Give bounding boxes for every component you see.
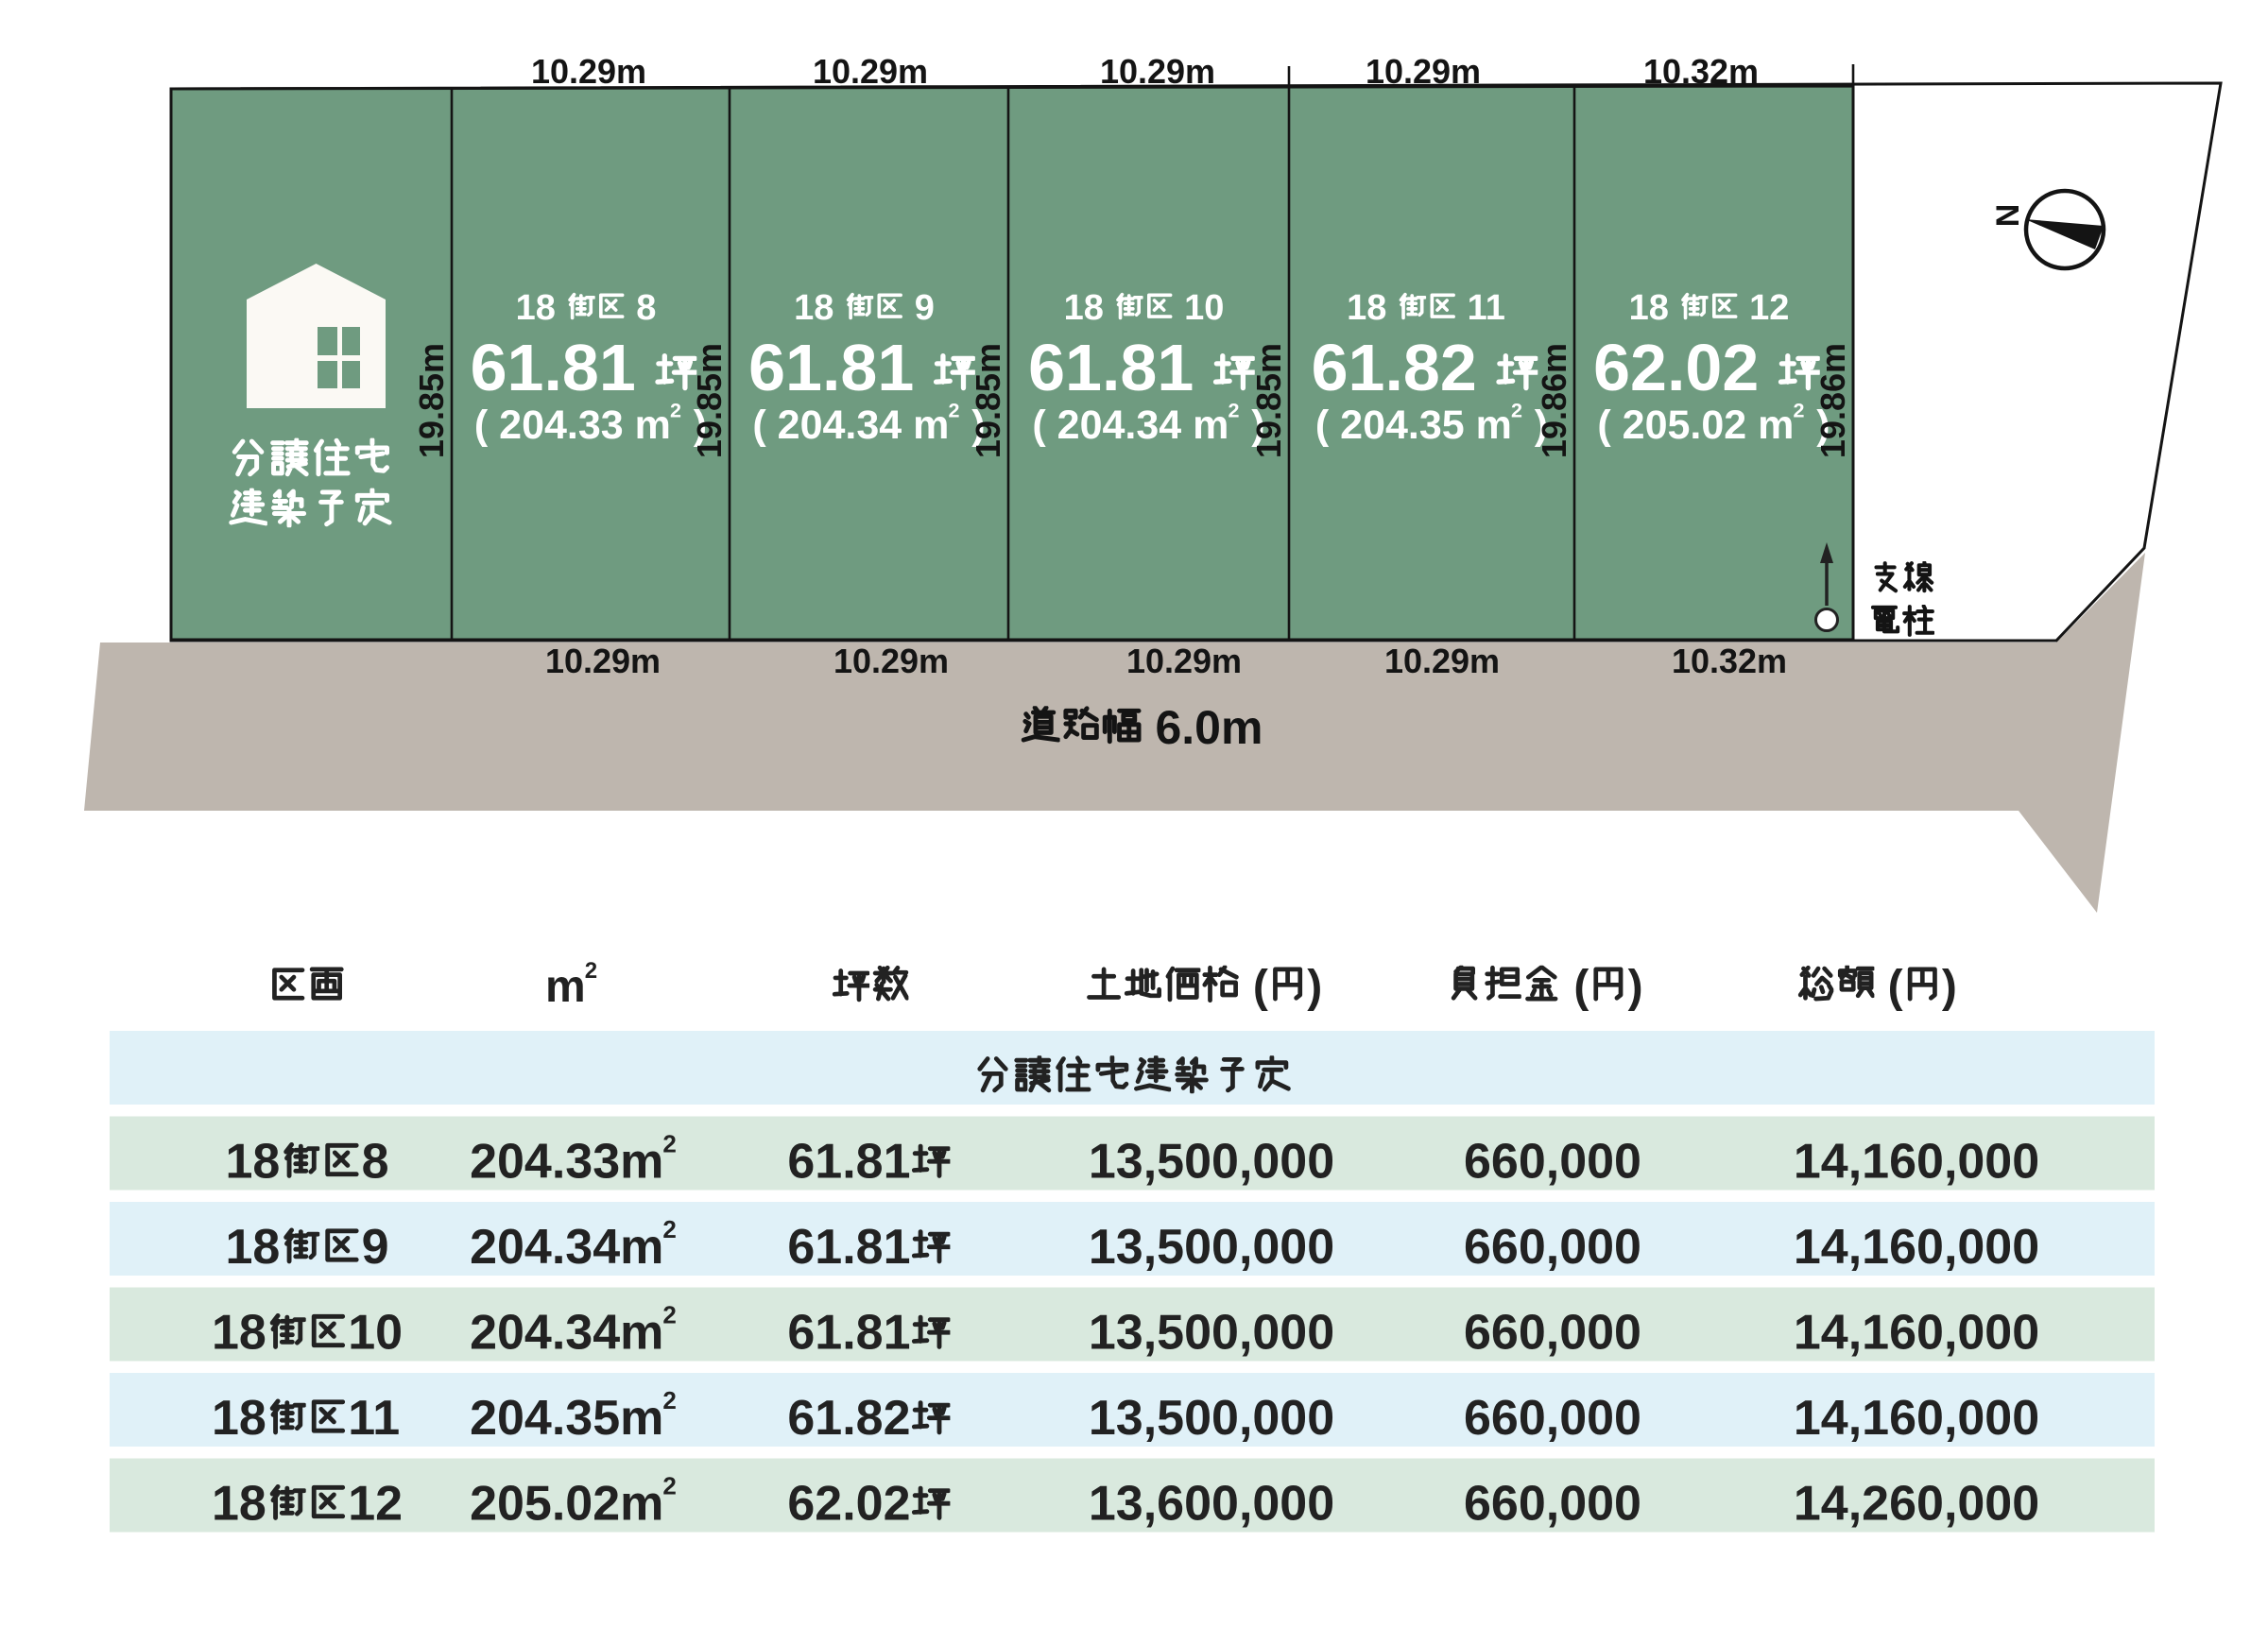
- svg-text:205.02m: 205.02m: [470, 1477, 663, 1532]
- svg-text:( 204.33 m: ( 204.33 m: [474, 403, 671, 448]
- svg-text:204.34m: 204.34m: [470, 1220, 663, 1275]
- svg-text:660,000: 660,000: [1464, 1220, 1641, 1275]
- svg-text:18: 18: [1064, 288, 1114, 328]
- svg-text:10: 10: [348, 1306, 403, 1361]
- svg-text:13,500,000: 13,500,000: [1089, 1306, 1334, 1361]
- svg-text:19.85m: 19.85m: [1249, 343, 1288, 458]
- svg-text:6.0m: 6.0m: [1143, 701, 1263, 754]
- svg-text:61.81: 61.81: [787, 1135, 910, 1190]
- svg-text:62.02: 62.02: [1593, 331, 1778, 404]
- svg-text:61.81: 61.81: [1028, 331, 1212, 404]
- svg-text:2: 2: [662, 1301, 676, 1329]
- svg-text:14,160,000: 14,160,000: [1794, 1306, 2039, 1361]
- svg-text:18: 18: [226, 1135, 281, 1190]
- svg-text:2: 2: [670, 400, 681, 422]
- svg-text:61.81: 61.81: [787, 1220, 910, 1275]
- svg-text:10: 10: [1175, 288, 1225, 328]
- svg-text:18: 18: [212, 1391, 266, 1446]
- svg-text:18: 18: [1347, 288, 1397, 328]
- svg-text:14,260,000: 14,260,000: [1794, 1477, 2039, 1532]
- svg-text:18: 18: [226, 1220, 281, 1275]
- svg-text:10.29m: 10.29m: [1366, 52, 1481, 91]
- svg-text:2: 2: [662, 1472, 676, 1500]
- svg-text:(: (: [1241, 962, 1268, 1012]
- svg-text:18: 18: [212, 1477, 266, 1532]
- svg-text:18: 18: [516, 288, 566, 328]
- svg-text:2: 2: [1794, 400, 1805, 422]
- svg-text:2: 2: [1511, 400, 1522, 422]
- svg-text:61.82: 61.82: [787, 1391, 910, 1446]
- svg-text:14,160,000: 14,160,000: [1794, 1135, 2039, 1190]
- svg-text:18: 18: [212, 1306, 266, 1361]
- svg-text:( 204.35 m: ( 204.35 m: [1315, 403, 1512, 448]
- svg-text:10.29m: 10.29m: [1100, 52, 1215, 91]
- svg-text:18: 18: [1629, 288, 1679, 328]
- svg-text:2: 2: [662, 1130, 676, 1158]
- svg-text:61.82: 61.82: [1312, 331, 1496, 404]
- svg-text:19.86m: 19.86m: [1535, 343, 1573, 458]
- svg-text:10.29m: 10.29m: [1126, 642, 1242, 680]
- svg-text:N: N: [1990, 204, 2026, 228]
- svg-text:13,600,000: 13,600,000: [1089, 1477, 1334, 1532]
- svg-text:(: (: [1875, 962, 1902, 1012]
- svg-text:( 204.34 m: ( 204.34 m: [1032, 403, 1228, 448]
- svg-text:10.29m: 10.29m: [545, 642, 661, 680]
- svg-text:9: 9: [362, 1220, 389, 1275]
- svg-text:2: 2: [662, 1215, 676, 1243]
- svg-text:14,160,000: 14,160,000: [1794, 1391, 2039, 1446]
- svg-text:8: 8: [362, 1135, 389, 1190]
- svg-text:62.02: 62.02: [787, 1477, 910, 1532]
- svg-text:10.29m: 10.29m: [1384, 642, 1500, 680]
- svg-text:204.34m: 204.34m: [470, 1306, 663, 1361]
- svg-text:( 204.34 m: ( 204.34 m: [752, 403, 949, 448]
- svg-text:660,000: 660,000: [1464, 1391, 1641, 1446]
- svg-text:2: 2: [949, 400, 960, 422]
- svg-text:12: 12: [1740, 288, 1790, 328]
- svg-text:(: (: [1561, 962, 1589, 1012]
- svg-text:): ): [1942, 962, 1969, 1012]
- svg-text:10.32m: 10.32m: [1672, 642, 1787, 680]
- svg-text:10.32m: 10.32m: [1643, 52, 1759, 91]
- svg-text:13,500,000: 13,500,000: [1089, 1391, 1334, 1446]
- svg-text:660,000: 660,000: [1464, 1477, 1641, 1532]
- svg-text:9: 9: [904, 288, 935, 328]
- svg-text:19.85m: 19.85m: [969, 343, 1007, 458]
- svg-text:): ): [1307, 962, 1334, 1012]
- svg-text:m: m: [545, 962, 586, 1012]
- svg-text:18: 18: [794, 288, 844, 328]
- svg-text:8: 8: [627, 288, 657, 328]
- svg-text:204.33m: 204.33m: [470, 1135, 663, 1190]
- svg-text:10.29m: 10.29m: [531, 52, 646, 91]
- svg-text:( 205.02 m: ( 205.02 m: [1597, 403, 1794, 448]
- svg-text:2: 2: [585, 958, 597, 984]
- svg-text:660,000: 660,000: [1464, 1306, 1641, 1361]
- svg-text:12: 12: [348, 1477, 403, 1532]
- svg-text:10.29m: 10.29m: [813, 52, 928, 91]
- svg-text:13,500,000: 13,500,000: [1089, 1135, 1334, 1190]
- svg-text:61.81: 61.81: [748, 331, 933, 404]
- svg-text:11: 11: [1457, 288, 1505, 328]
- svg-text:14,160,000: 14,160,000: [1794, 1220, 2039, 1275]
- svg-text:2: 2: [662, 1386, 676, 1414]
- svg-text:19.85m: 19.85m: [690, 343, 729, 458]
- svg-text:204.35m: 204.35m: [470, 1391, 663, 1446]
- svg-text:13,500,000: 13,500,000: [1089, 1220, 1334, 1275]
- svg-text:11: 11: [348, 1391, 400, 1446]
- svg-text:19.86m: 19.86m: [1813, 343, 1852, 458]
- svg-text:660,000: 660,000: [1464, 1135, 1641, 1190]
- svg-text:61.81: 61.81: [471, 331, 655, 404]
- svg-text:19.85m: 19.85m: [412, 343, 451, 458]
- svg-text:2: 2: [1228, 400, 1240, 422]
- svg-text:): ): [1628, 962, 1656, 1012]
- svg-text:10.29m: 10.29m: [833, 642, 949, 680]
- svg-text:61.81: 61.81: [787, 1306, 910, 1361]
